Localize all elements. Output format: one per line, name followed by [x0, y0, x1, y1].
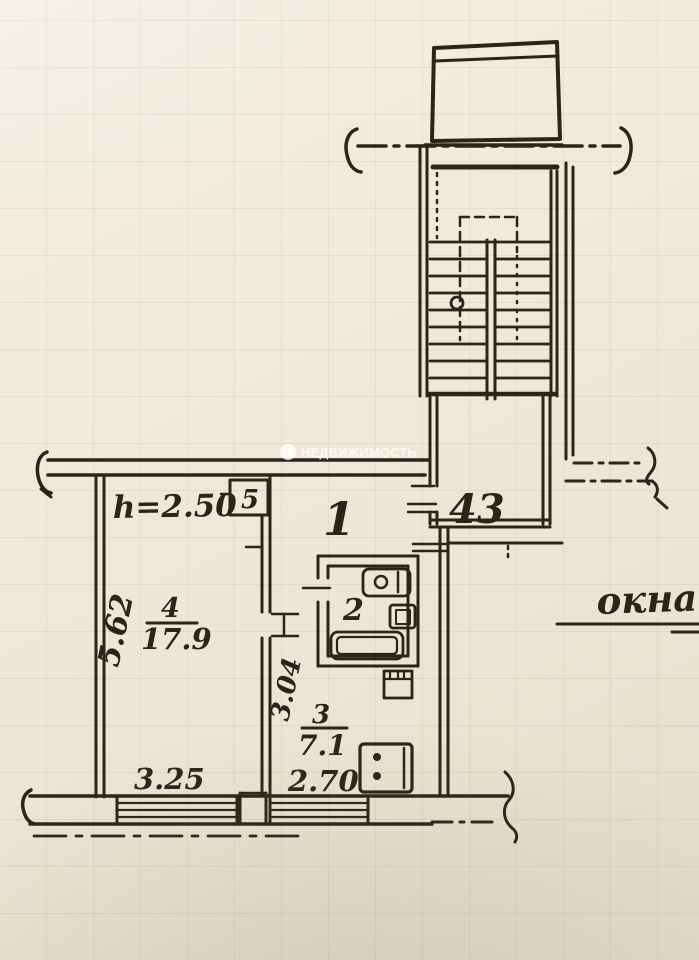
- living-room-window-dim: 3.25: [134, 762, 205, 796]
- staircase: [430, 217, 551, 399]
- kitchen-sink-symbol: [384, 671, 412, 698]
- ceiling-height-label: h=2.50: [113, 488, 238, 526]
- kitchen-number-label: 3: [312, 700, 330, 730]
- wall-break-hook-left: [37, 452, 51, 493]
- wall-break-hook-left: [346, 129, 361, 172]
- toilet-symbol: [390, 605, 415, 628]
- wall-break-hook-right: [504, 772, 516, 842]
- entrance-porch: [432, 42, 560, 141]
- watermark-logo-icon: [280, 444, 296, 460]
- window-note-label: окна: [596, 576, 698, 623]
- floor-plan-drawing: h=2.50 5 1 43 2 4 17.9 5.62 3.04 3 7.1 2…: [0, 0, 699, 960]
- entry-door-opening: [408, 486, 436, 512]
- kitchen-window: [270, 796, 368, 824]
- kitchen-depth-dim: 3.04: [266, 655, 309, 723]
- wall-break-hook: [647, 448, 655, 484]
- kitchen-window-dim: 2.70: [287, 764, 359, 798]
- floor-plan-photo: h=2.50 5 1 43 2 4 17.9 5.62 3.04 3 7.1 2…: [0, 0, 699, 960]
- bathroom-number-label: 2: [342, 593, 364, 628]
- landing-number-label: 43: [449, 486, 505, 533]
- right-wall-break: [566, 448, 667, 508]
- living-room-depth-dim: 5.62: [92, 591, 141, 670]
- living-room-window: [117, 796, 237, 824]
- wall-break-hook-right: [615, 128, 631, 173]
- watermark-text: НЕДВИЖИМОСТЬ: [301, 446, 417, 460]
- kitchen-door-opening: [272, 614, 298, 636]
- kitchen-area-label: 7.1: [298, 729, 347, 762]
- living-room-area-label: 17.9: [141, 622, 212, 656]
- hallway-number-label: 1: [323, 492, 355, 546]
- bathtub-symbol: [331, 632, 403, 659]
- stair-direction-mark: [451, 297, 463, 309]
- stove-symbol: [360, 744, 412, 792]
- watermark: НЕДВИЖИМОСТЬ: [280, 444, 417, 460]
- living-room-number-label: 4: [161, 593, 180, 624]
- closet-number-label: 5: [241, 485, 259, 515]
- window-note-underline: [557, 624, 699, 632]
- sink-symbol: [363, 569, 410, 596]
